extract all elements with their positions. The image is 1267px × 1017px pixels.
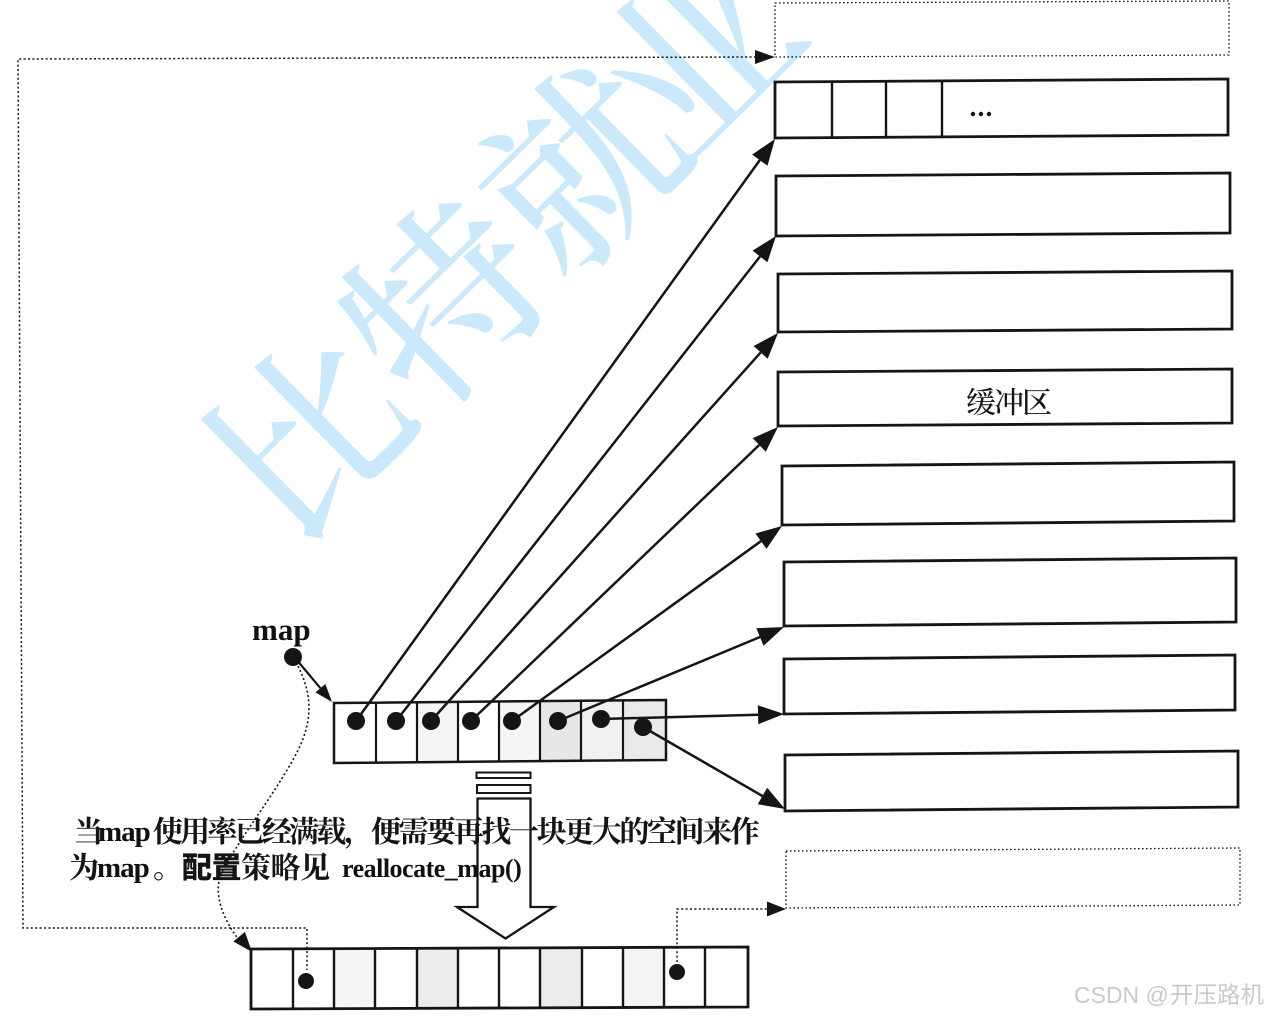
svg-text:CSDN @: CSDN @ [1074, 982, 1169, 1008]
svg-text:map: map [98, 816, 150, 848]
svg-text:map: map [252, 612, 311, 647]
svg-text:map: map [97, 852, 149, 884]
svg-text:reallocate_map(): reallocate_map() [342, 854, 521, 883]
